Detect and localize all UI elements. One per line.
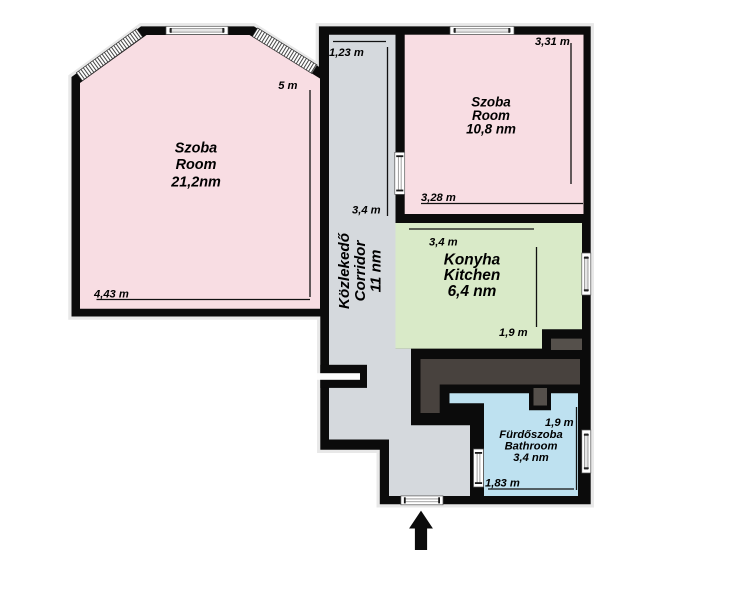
- svg-text:Corridor: Corridor: [352, 240, 369, 302]
- svg-text:Bathroom: Bathroom: [505, 441, 558, 453]
- svg-text:11 nm: 11 nm: [368, 250, 385, 293]
- svg-text:1,83 m: 1,83 m: [485, 478, 520, 490]
- svg-text:3,4 m: 3,4 m: [352, 205, 381, 217]
- svg-text:5 m: 5 m: [278, 80, 297, 92]
- svg-text:1,23 m: 1,23 m: [329, 47, 364, 59]
- svg-text:Konyha: Konyha: [444, 251, 501, 268]
- svg-text:21,2nm: 21,2nm: [170, 175, 221, 191]
- svg-text:3,4 m: 3,4 m: [429, 237, 458, 249]
- svg-text:Közlekedő: Közlekedő: [336, 232, 353, 309]
- svg-text:1,9 m: 1,9 m: [499, 327, 528, 339]
- svg-text:4,43 m: 4,43 m: [93, 289, 129, 301]
- svg-text:10,8 nm: 10,8 nm: [466, 122, 516, 137]
- svg-text:Kitchen: Kitchen: [444, 267, 500, 284]
- svg-text:Fürdőszoba: Fürdőszoba: [499, 429, 562, 441]
- svg-text:6,4 nm: 6,4 nm: [448, 283, 497, 300]
- svg-text:Room: Room: [176, 157, 217, 173]
- svg-text:3,28 m: 3,28 m: [421, 192, 456, 204]
- svg-text:3,31 m: 3,31 m: [535, 36, 570, 48]
- svg-text:1,9 m: 1,9 m: [545, 417, 574, 429]
- svg-text:Szoba: Szoba: [175, 141, 217, 157]
- svg-text:3,4 nm: 3,4 nm: [513, 452, 548, 464]
